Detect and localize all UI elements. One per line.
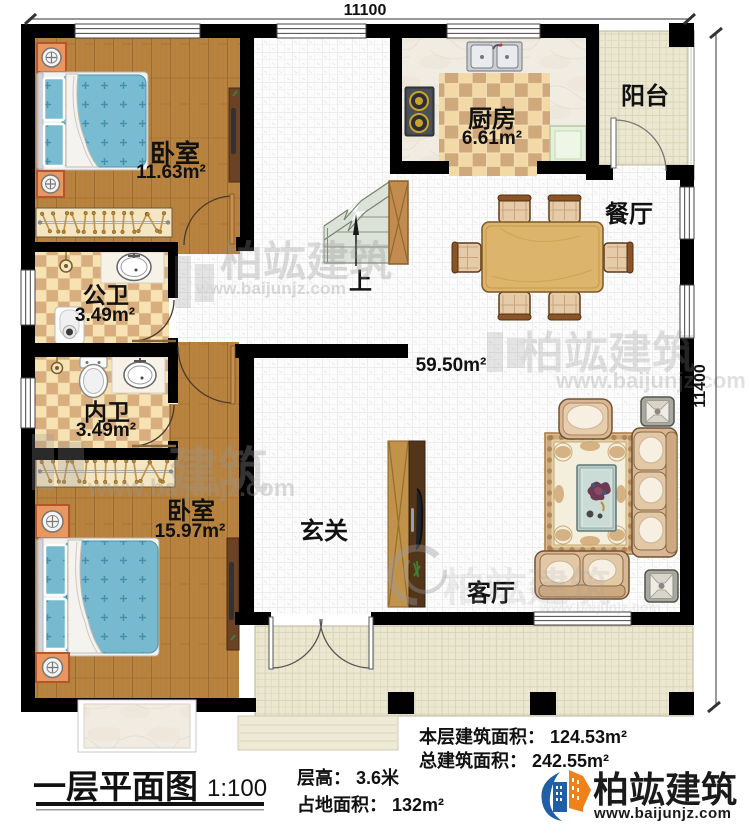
svg-text:柏竑建筑: 柏竑建筑	[220, 238, 392, 285]
svg-text:11100: 11100	[344, 2, 387, 19]
svg-text:www.baijunjz.com: www.baijunjz.com	[555, 368, 746, 393]
svg-text:15.97m²: 15.97m²	[155, 521, 226, 542]
svg-text:一层平面图: 一层平面图	[33, 768, 198, 805]
svg-text:占地面积： 132m²: 占地面积： 132m²	[297, 794, 444, 815]
svg-text:11400: 11400	[692, 364, 709, 408]
svg-text:www.baijunjz.com: www.baijunjz.com	[195, 279, 346, 298]
svg-text:阳台: 阳台	[621, 82, 669, 110]
svg-text:59.50m²: 59.50m²	[416, 355, 487, 376]
svg-text:本层建筑面积： 124.53m²: 本层建筑面积： 124.53m²	[419, 726, 627, 747]
svg-text:6.61m²: 6.61m²	[462, 128, 522, 149]
svg-text:总建筑面积： 242.55m²: 总建筑面积： 242.55m²	[419, 750, 609, 771]
svg-text:餐厅: 餐厅	[605, 201, 653, 228]
svg-text:3.49m²: 3.49m²	[75, 305, 135, 326]
svg-text:玄关: 玄关	[300, 517, 348, 545]
svg-text:11.63m²: 11.63m²	[136, 162, 206, 183]
svg-text:www.baijunjz.com: www.baijunjz.com	[539, 599, 661, 615]
svg-text:柏竑建筑: 柏竑建筑	[593, 769, 737, 810]
svg-text:www.baijunjz.com: www.baijunjz.com	[593, 805, 731, 822]
svg-text:www.baijunjz.com: www.baijunjz.com	[87, 475, 295, 502]
svg-text:3.49m²: 3.49m²	[76, 420, 136, 441]
svg-text:1:100: 1:100	[207, 775, 267, 802]
svg-text:层高： 3.6米: 层高： 3.6米	[297, 767, 400, 788]
